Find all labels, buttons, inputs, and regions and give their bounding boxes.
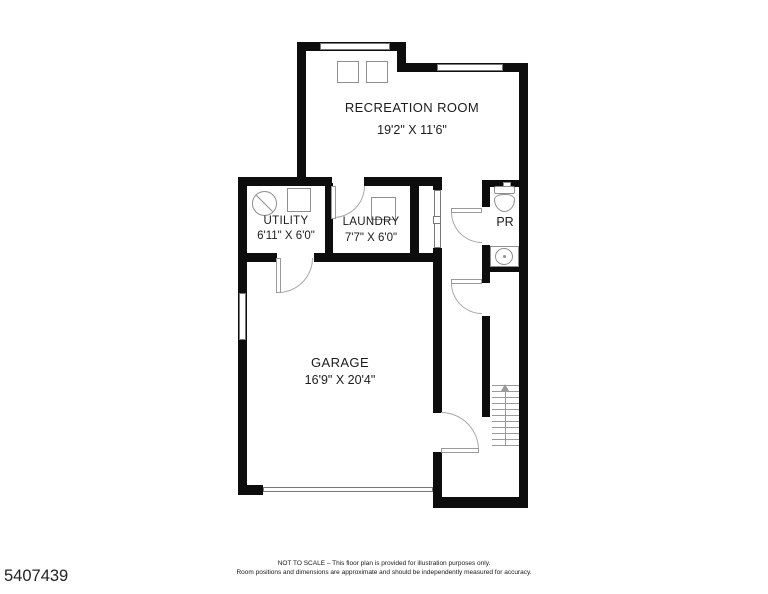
wall-garage-top-b bbox=[314, 253, 442, 262]
laundry-dimensions: 7'7" X 6'0" bbox=[331, 232, 411, 244]
wall-garage-top-a bbox=[238, 253, 277, 262]
door-leaf-powder-room bbox=[451, 208, 482, 213]
appliance-box-icon-utility bbox=[287, 188, 311, 212]
equipment-box-icon-rec-1 bbox=[337, 61, 359, 83]
equipment-box-icon-rec-2 bbox=[366, 61, 388, 83]
door-swing-icon-hall-garage bbox=[441, 412, 479, 450]
door-leaf-laundry bbox=[331, 186, 336, 219]
garage-dimensions: 16'9" X 20'4" bbox=[270, 373, 410, 387]
floor-plan: RECREATION ROOM 19'2" X 11'6" UTILITY 6'… bbox=[0, 0, 768, 594]
stairs-up-arrow-icon bbox=[501, 384, 509, 391]
garage-label: GARAGE bbox=[270, 355, 410, 370]
wall-hall-bottom bbox=[433, 497, 528, 508]
laundry-label: LAUNDRY bbox=[331, 216, 411, 228]
recreation-room-label: RECREATION ROOM bbox=[312, 100, 512, 115]
stairs-arrow-line bbox=[505, 390, 506, 445]
recreation-room-dimensions: 19'2" X 11'6" bbox=[312, 123, 512, 137]
closet-door-handle-icon bbox=[433, 216, 441, 224]
powder-room-label: PR bbox=[485, 215, 525, 229]
door-leaf-under-stair-closet bbox=[451, 279, 482, 284]
wall-hall-left-c bbox=[433, 452, 442, 497]
door-leaf-hall-garage bbox=[441, 448, 479, 453]
wall-rec-bottom-b bbox=[364, 177, 442, 186]
window-icon-recreation-left bbox=[320, 43, 390, 50]
wall-stair-left-a bbox=[482, 272, 490, 283]
wall-laundry-right bbox=[410, 183, 419, 259]
wall-rec-left bbox=[297, 42, 306, 183]
wall-garage-bottom-corner bbox=[238, 485, 263, 495]
door-swing-icon-laundry bbox=[333, 186, 365, 218]
utility-dimensions: 6'11" X 6'0" bbox=[236, 230, 336, 242]
sink-drain-icon bbox=[503, 255, 506, 258]
toilet-tank-icon bbox=[494, 186, 515, 194]
utility-label: UTILITY bbox=[246, 215, 326, 227]
toilet-icon bbox=[494, 194, 515, 212]
window-icon-garage bbox=[239, 293, 246, 340]
door-leaf-garage-entry bbox=[276, 258, 281, 293]
wall-rec-bottom-a bbox=[238, 177, 332, 186]
water-heater-line bbox=[256, 195, 273, 212]
window-icon-recreation-right bbox=[437, 64, 503, 71]
wall-hall-left-b bbox=[433, 248, 442, 413]
door-swing-icon-garage-entry bbox=[278, 258, 313, 293]
wall-stair-left-b bbox=[482, 316, 490, 417]
footer-disclaimer-line2: Room positions and dimensions are approx… bbox=[84, 569, 684, 577]
door-swing-icon-powder-room bbox=[451, 212, 482, 243]
wall-pr-left-a bbox=[482, 187, 490, 207]
footer-disclaimer-line1: NOT TO SCALE – This floor plan is provid… bbox=[84, 560, 684, 568]
wall-right-exterior bbox=[519, 63, 528, 508]
door-swing-icon-under-stair-closet bbox=[451, 283, 482, 314]
wall-hall-left-a bbox=[433, 177, 442, 190]
listing-id: 5407439 bbox=[4, 567, 68, 586]
garage-door-icon bbox=[263, 487, 433, 492]
water-heater-icon bbox=[252, 191, 277, 216]
